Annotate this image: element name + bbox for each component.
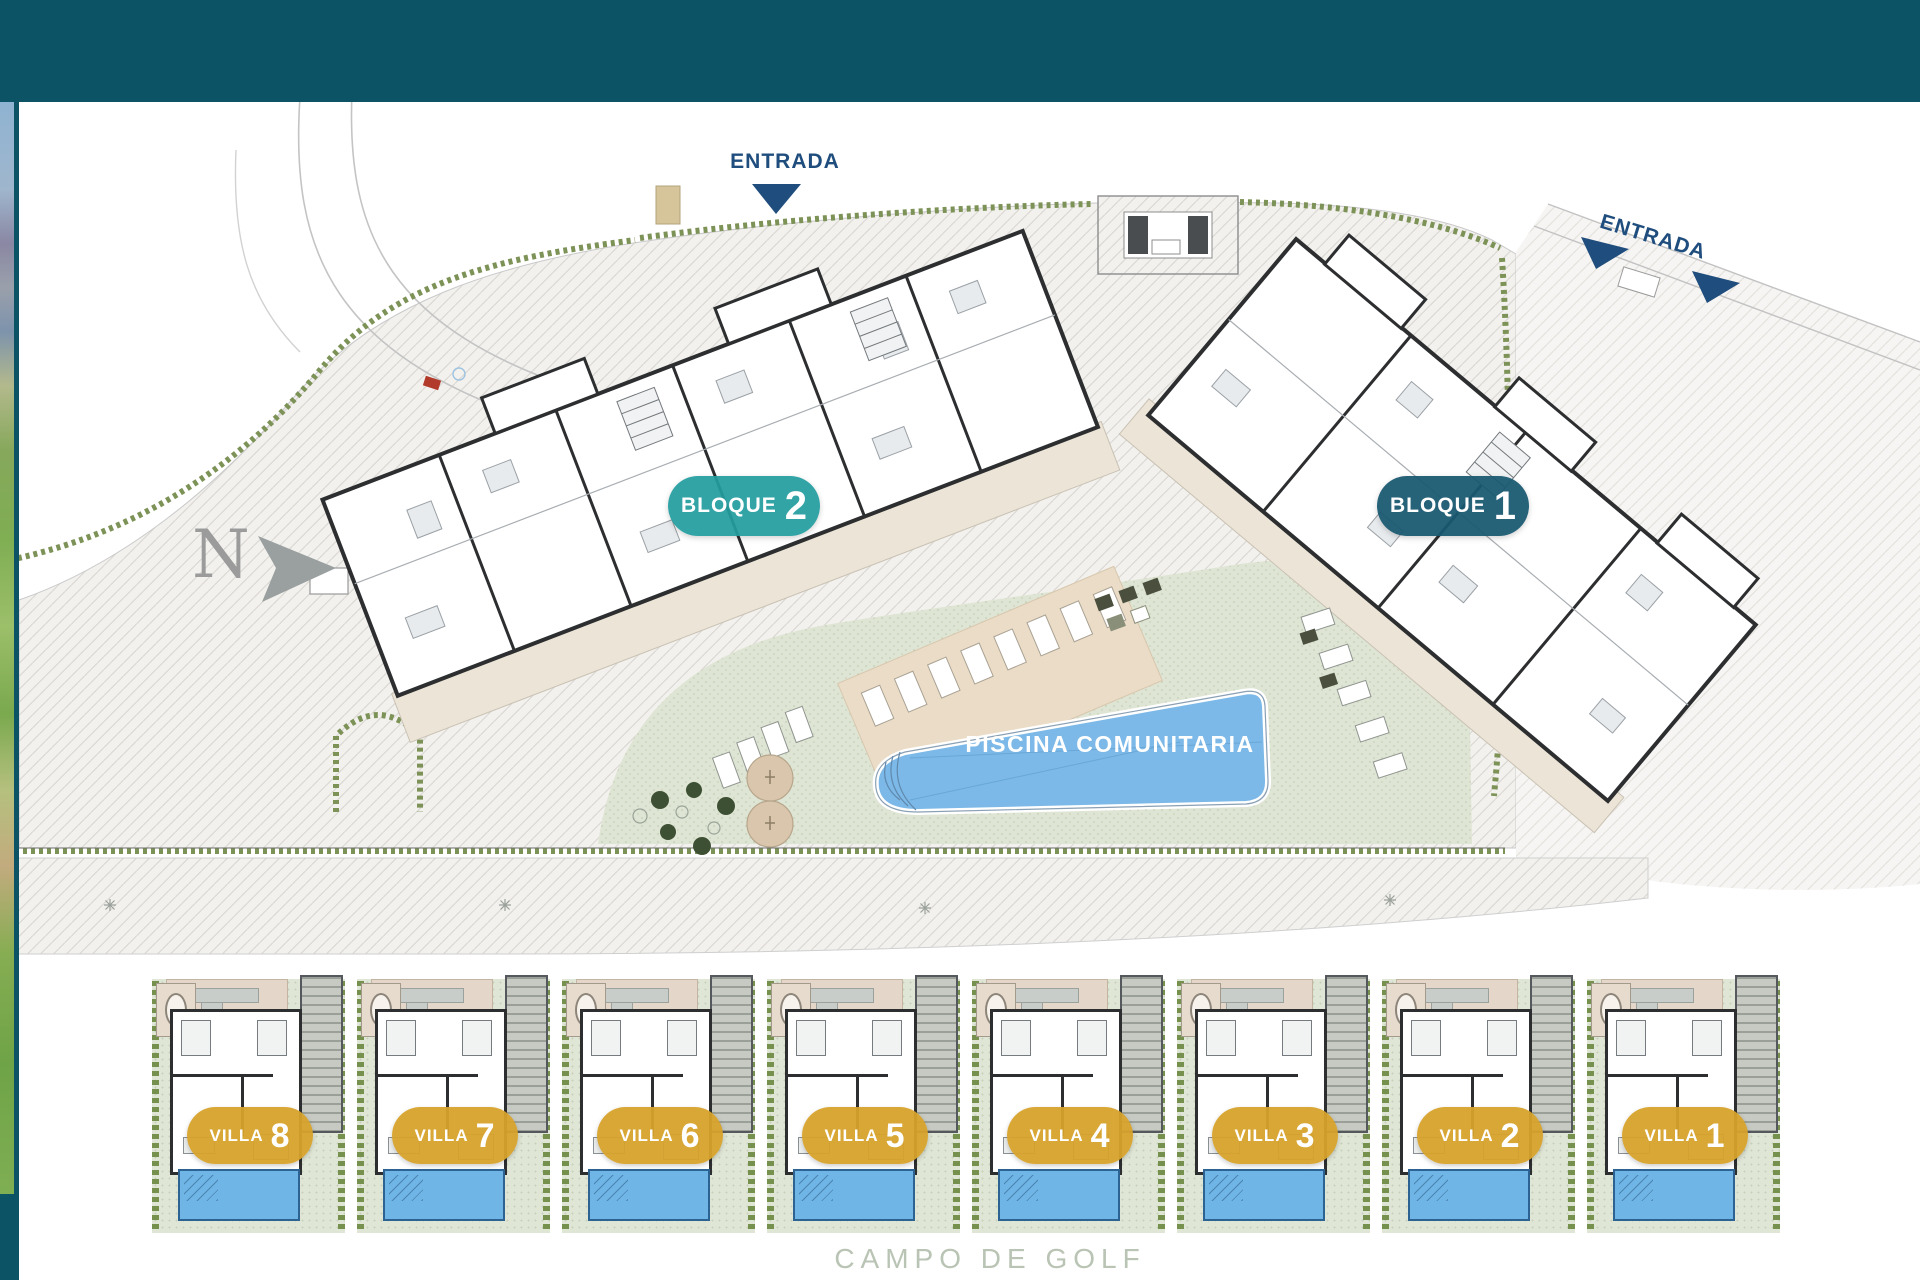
villa-pool <box>1613 1169 1735 1221</box>
villa-number: 2 <box>1501 1119 1520 1153</box>
bed-symbol <box>1692 1020 1722 1056</box>
bed-symbol <box>1616 1020 1646 1056</box>
villa-pool <box>383 1169 505 1221</box>
villa-driveway <box>505 975 548 1133</box>
villa-badge: VILLA 8 <box>187 1107 313 1164</box>
villa-pool <box>1203 1169 1325 1221</box>
villa-label: VILLA <box>209 1126 263 1146</box>
villa-badge: VILLA 7 <box>392 1107 518 1164</box>
villa-plot: VILLA 8 <box>150 975 349 1237</box>
pool-steps <box>184 1175 218 1201</box>
interior-wall <box>1198 1074 1298 1077</box>
north-label: N <box>192 516 250 593</box>
pool-steps <box>799 1175 833 1201</box>
bed-symbol <box>591 1020 621 1056</box>
pool-steps <box>389 1175 423 1201</box>
villa-label: VILLA <box>1439 1126 1493 1146</box>
side-divider-bar <box>14 102 19 1280</box>
villa-driveway <box>1530 975 1573 1133</box>
villa-label: VILLA <box>414 1126 468 1146</box>
pool-steps <box>1619 1175 1653 1201</box>
villa-number: 8 <box>271 1119 290 1153</box>
pool-steps <box>1004 1175 1038 1201</box>
bed-symbol <box>1487 1020 1517 1056</box>
villa-label: VILLA <box>1029 1126 1083 1146</box>
terrace-sofa <box>601 988 669 1003</box>
villa-pool <box>998 1169 1120 1221</box>
villa-driveway <box>1120 975 1163 1133</box>
villa-driveway <box>1735 975 1778 1133</box>
interior-wall <box>788 1074 888 1077</box>
site-plan-page: ENTRADA ENTRADA N BLOQUE 2 BLOQUE 1 PISC… <box>0 0 1920 1280</box>
terrace-sofa <box>1421 988 1489 1003</box>
villa-plot: VILLA 7 <box>355 975 554 1237</box>
bed-symbol <box>386 1020 416 1056</box>
villa-driveway <box>710 975 753 1133</box>
bed-symbol <box>257 1020 287 1056</box>
golf-course-label: CAMPO DE GOLF <box>800 1243 1180 1275</box>
pool-steps <box>1414 1175 1448 1201</box>
villa-label: VILLA <box>1234 1126 1288 1146</box>
entrance-label-top: ENTRADA <box>718 150 852 174</box>
header-bar <box>0 0 1920 102</box>
bed-symbol <box>1077 1020 1107 1056</box>
bed-symbol <box>872 1020 902 1056</box>
villa-badge: VILLA 2 <box>1417 1107 1543 1164</box>
bloque-2-number: 2 <box>785 486 807 526</box>
bed-symbol <box>181 1020 211 1056</box>
villa-badge: VILLA 3 <box>1212 1107 1338 1164</box>
terrace-sofa <box>396 988 464 1003</box>
side-footer-block <box>0 1194 14 1280</box>
villa-badge: VILLA 4 <box>1007 1107 1133 1164</box>
bloque-1-label: BLOQUE <box>1390 494 1486 518</box>
terrace-sofa <box>1011 988 1079 1003</box>
interior-wall <box>173 1074 273 1077</box>
villa-label: VILLA <box>619 1126 673 1146</box>
bed-symbol <box>796 1020 826 1056</box>
bloque-2-label: BLOQUE <box>681 494 777 518</box>
villa-plot: VILLA 3 <box>1175 975 1374 1237</box>
villa-label: VILLA <box>824 1126 878 1146</box>
villa-number: 6 <box>681 1119 700 1153</box>
bed-symbol <box>1001 1020 1031 1056</box>
entrance-island <box>656 186 680 224</box>
bed-symbol <box>667 1020 697 1056</box>
pool-steps <box>594 1175 628 1201</box>
villa-plot: VILLA 4 <box>970 975 1169 1237</box>
interior-wall <box>378 1074 478 1077</box>
villa-driveway <box>1325 975 1368 1133</box>
villa-number: 1 <box>1706 1119 1725 1153</box>
side-photo-strip <box>0 102 14 1194</box>
promenade <box>0 858 1648 954</box>
bed-symbol <box>1411 1020 1441 1056</box>
terrace-sofa <box>806 988 874 1003</box>
communal-pool-label: PISCINA COMUNITARIA <box>940 731 1280 758</box>
villa-number: 3 <box>1296 1119 1315 1153</box>
villa-badge: VILLA 5 <box>802 1107 928 1164</box>
bed-symbol <box>462 1020 492 1056</box>
villas-row: VILLA 8 <box>150 975 1794 1240</box>
villa-number: 4 <box>1091 1119 1110 1153</box>
villa-plot: VILLA 6 <box>560 975 759 1237</box>
interior-wall <box>1608 1074 1708 1077</box>
villa-driveway <box>915 975 958 1133</box>
interior-wall <box>993 1074 1093 1077</box>
bloque-1-number: 1 <box>1494 486 1516 526</box>
bloque-2-badge: BLOQUE 2 <box>668 476 820 536</box>
bed-symbol <box>1282 1020 1312 1056</box>
villa-pool <box>588 1169 710 1221</box>
villa-plot: VILLA 1 <box>1585 975 1784 1237</box>
villa-number: 5 <box>886 1119 905 1153</box>
villa-pool <box>793 1169 915 1221</box>
bloque-1-badge: BLOQUE 1 <box>1377 476 1529 536</box>
interior-wall <box>583 1074 683 1077</box>
villa-driveway <box>300 975 343 1133</box>
terrace-sofa <box>1216 988 1284 1003</box>
bed-symbol <box>1206 1020 1236 1056</box>
villa-number: 7 <box>476 1119 495 1153</box>
villa-label: VILLA <box>1644 1126 1698 1146</box>
terrace-sofa <box>191 988 259 1003</box>
villa-plot: VILLA 5 <box>765 975 964 1237</box>
terrace-sofa <box>1626 988 1694 1003</box>
villa-badge: VILLA 6 <box>597 1107 723 1164</box>
villa-pool <box>178 1169 300 1221</box>
villa-badge: VILLA 1 <box>1622 1107 1748 1164</box>
pool-steps <box>1209 1175 1243 1201</box>
villa-plot: VILLA 2 <box>1380 975 1579 1237</box>
villa-pool <box>1408 1169 1530 1221</box>
interior-wall <box>1403 1074 1503 1077</box>
